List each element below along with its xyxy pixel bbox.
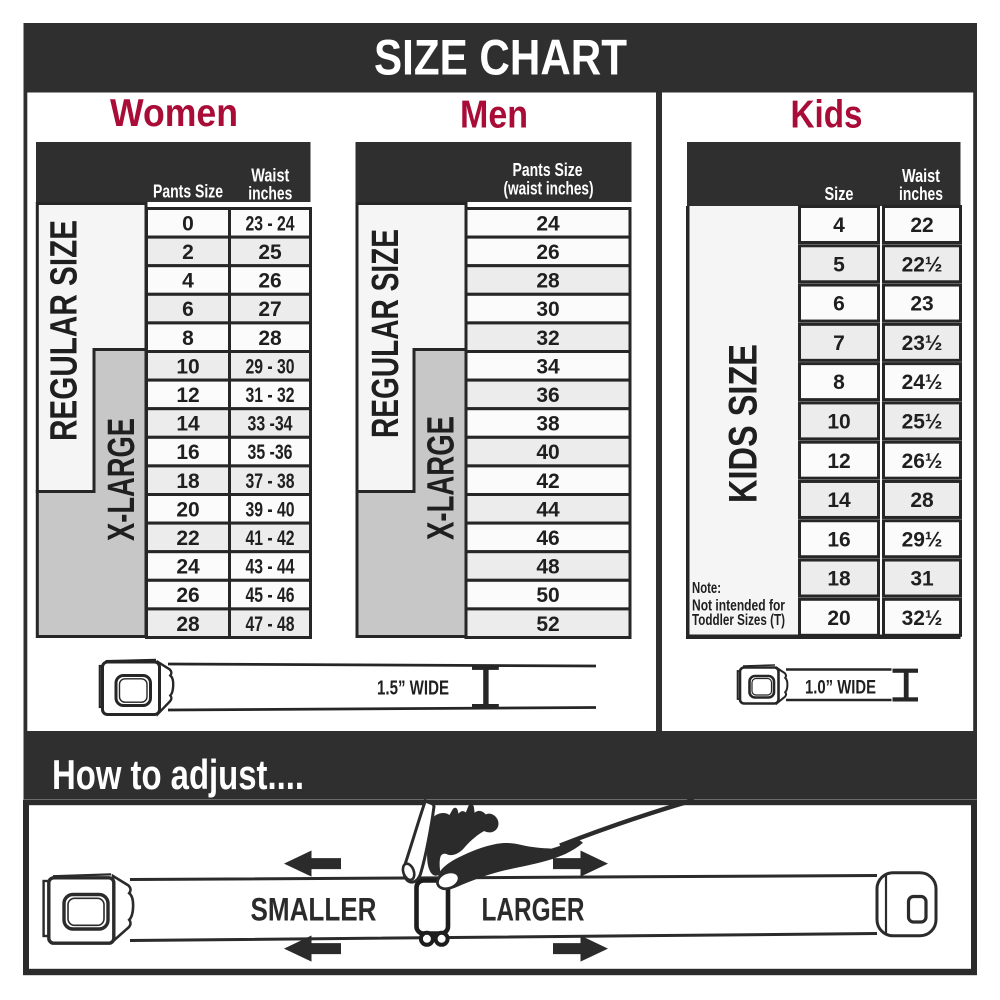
svg-text:Kids: Kids	[791, 94, 863, 137]
svg-text:28: 28	[536, 270, 560, 293]
svg-text:LARGER: LARGER	[482, 891, 585, 927]
svg-text:32½: 32½	[902, 607, 943, 630]
svg-text:Pants Size: Pants Size	[513, 160, 583, 180]
svg-text:Waist: Waist	[251, 166, 289, 186]
svg-text:20: 20	[827, 607, 850, 630]
svg-text:30: 30	[536, 298, 559, 321]
svg-text:12: 12	[176, 384, 199, 407]
svg-text:Pants Size: Pants Size	[153, 182, 223, 202]
svg-text:26: 26	[176, 584, 199, 607]
svg-text:18: 18	[827, 568, 851, 591]
svg-text:23½: 23½	[902, 332, 943, 355]
svg-text:47 - 48: 47 - 48	[246, 613, 295, 636]
svg-text:X-LARGE: X-LARGE	[421, 416, 463, 540]
svg-text:X-LARGE: X-LARGE	[101, 418, 143, 541]
svg-text:SMALLER: SMALLER	[251, 891, 377, 927]
svg-text:14: 14	[176, 413, 200, 436]
svg-text:43 - 44: 43 - 44	[246, 556, 295, 579]
svg-text:Toddler Sizes (T): Toddler Sizes (T)	[692, 612, 785, 629]
svg-text:12: 12	[827, 450, 850, 473]
svg-text:48: 48	[536, 556, 560, 579]
svg-text:inches: inches	[899, 184, 943, 204]
svg-text:20: 20	[176, 498, 199, 521]
svg-text:2: 2	[182, 241, 194, 264]
svg-text:6: 6	[182, 298, 194, 321]
svg-text:37 - 38: 37 - 38	[246, 470, 295, 493]
svg-text:How to adjust....: How to adjust....	[52, 751, 304, 798]
svg-text:22: 22	[176, 527, 199, 550]
svg-text:8: 8	[182, 327, 194, 350]
svg-text:24: 24	[176, 556, 200, 579]
svg-text:50: 50	[536, 584, 559, 607]
svg-text:4: 4	[182, 270, 194, 293]
svg-text:26: 26	[258, 270, 281, 293]
svg-text:KIDS SIZE: KIDS SIZE	[721, 344, 765, 503]
svg-text:Size: Size	[825, 184, 854, 204]
svg-text:22½: 22½	[902, 253, 943, 276]
svg-text:28: 28	[258, 327, 282, 350]
svg-text:31 - 32: 31 - 32	[246, 384, 295, 407]
svg-text:29½: 29½	[902, 528, 943, 551]
svg-text:27: 27	[258, 298, 281, 321]
svg-text:32: 32	[536, 327, 559, 350]
svg-text:10: 10	[176, 355, 199, 378]
svg-text:40: 40	[536, 441, 559, 464]
svg-text:23 - 24: 23 - 24	[246, 212, 295, 235]
svg-text:35 -36: 35 -36	[248, 441, 293, 464]
svg-text:6: 6	[833, 293, 845, 316]
svg-text:(waist inches): (waist inches)	[504, 179, 594, 199]
svg-text:SIZE CHART: SIZE CHART	[374, 30, 627, 86]
svg-text:REGULAR SIZE: REGULAR SIZE	[365, 229, 407, 438]
svg-text:31: 31	[910, 568, 934, 591]
svg-text:8: 8	[833, 371, 845, 394]
svg-text:38: 38	[536, 413, 560, 436]
svg-text:25: 25	[258, 241, 282, 264]
svg-text:45 - 46: 45 - 46	[246, 584, 295, 607]
svg-text:1.0” WIDE: 1.0” WIDE	[805, 677, 876, 699]
svg-text:34: 34	[536, 355, 560, 378]
svg-text:inches: inches	[248, 184, 292, 204]
svg-text:0: 0	[182, 212, 194, 235]
svg-text:26½: 26½	[902, 450, 943, 473]
svg-text:41 - 42: 41 - 42	[246, 527, 295, 550]
svg-text:5: 5	[833, 253, 845, 276]
svg-text:39 - 40: 39 - 40	[246, 498, 295, 521]
svg-text:52: 52	[536, 613, 559, 636]
svg-text:16: 16	[827, 528, 850, 551]
svg-text:33 -34: 33 -34	[248, 413, 293, 436]
svg-text:18: 18	[176, 470, 200, 493]
svg-text:Women: Women	[110, 92, 238, 135]
svg-text:28: 28	[176, 613, 200, 636]
svg-text:7: 7	[833, 332, 845, 355]
svg-text:29 - 30: 29 - 30	[246, 355, 295, 378]
svg-text:14: 14	[827, 489, 851, 512]
svg-text:42: 42	[536, 470, 559, 493]
svg-text:10: 10	[827, 411, 850, 434]
svg-text:Waist: Waist	[902, 166, 940, 186]
svg-text:36: 36	[536, 384, 559, 407]
svg-text:46: 46	[536, 527, 559, 550]
svg-text:24½: 24½	[902, 371, 943, 394]
svg-text:25½: 25½	[902, 411, 943, 434]
svg-text:16: 16	[176, 441, 199, 464]
svg-text:44: 44	[536, 498, 560, 521]
svg-text:22: 22	[910, 214, 933, 237]
svg-text:Men: Men	[460, 94, 528, 137]
svg-text:4: 4	[833, 214, 845, 237]
svg-text:REGULAR SIZE: REGULAR SIZE	[43, 220, 85, 441]
svg-text:24: 24	[536, 212, 560, 235]
svg-text:23: 23	[910, 293, 933, 316]
svg-text:Note:: Note:	[692, 580, 721, 597]
svg-text:1.5” WIDE: 1.5” WIDE	[377, 678, 449, 700]
svg-text:28: 28	[910, 489, 934, 512]
svg-text:26: 26	[536, 241, 559, 264]
